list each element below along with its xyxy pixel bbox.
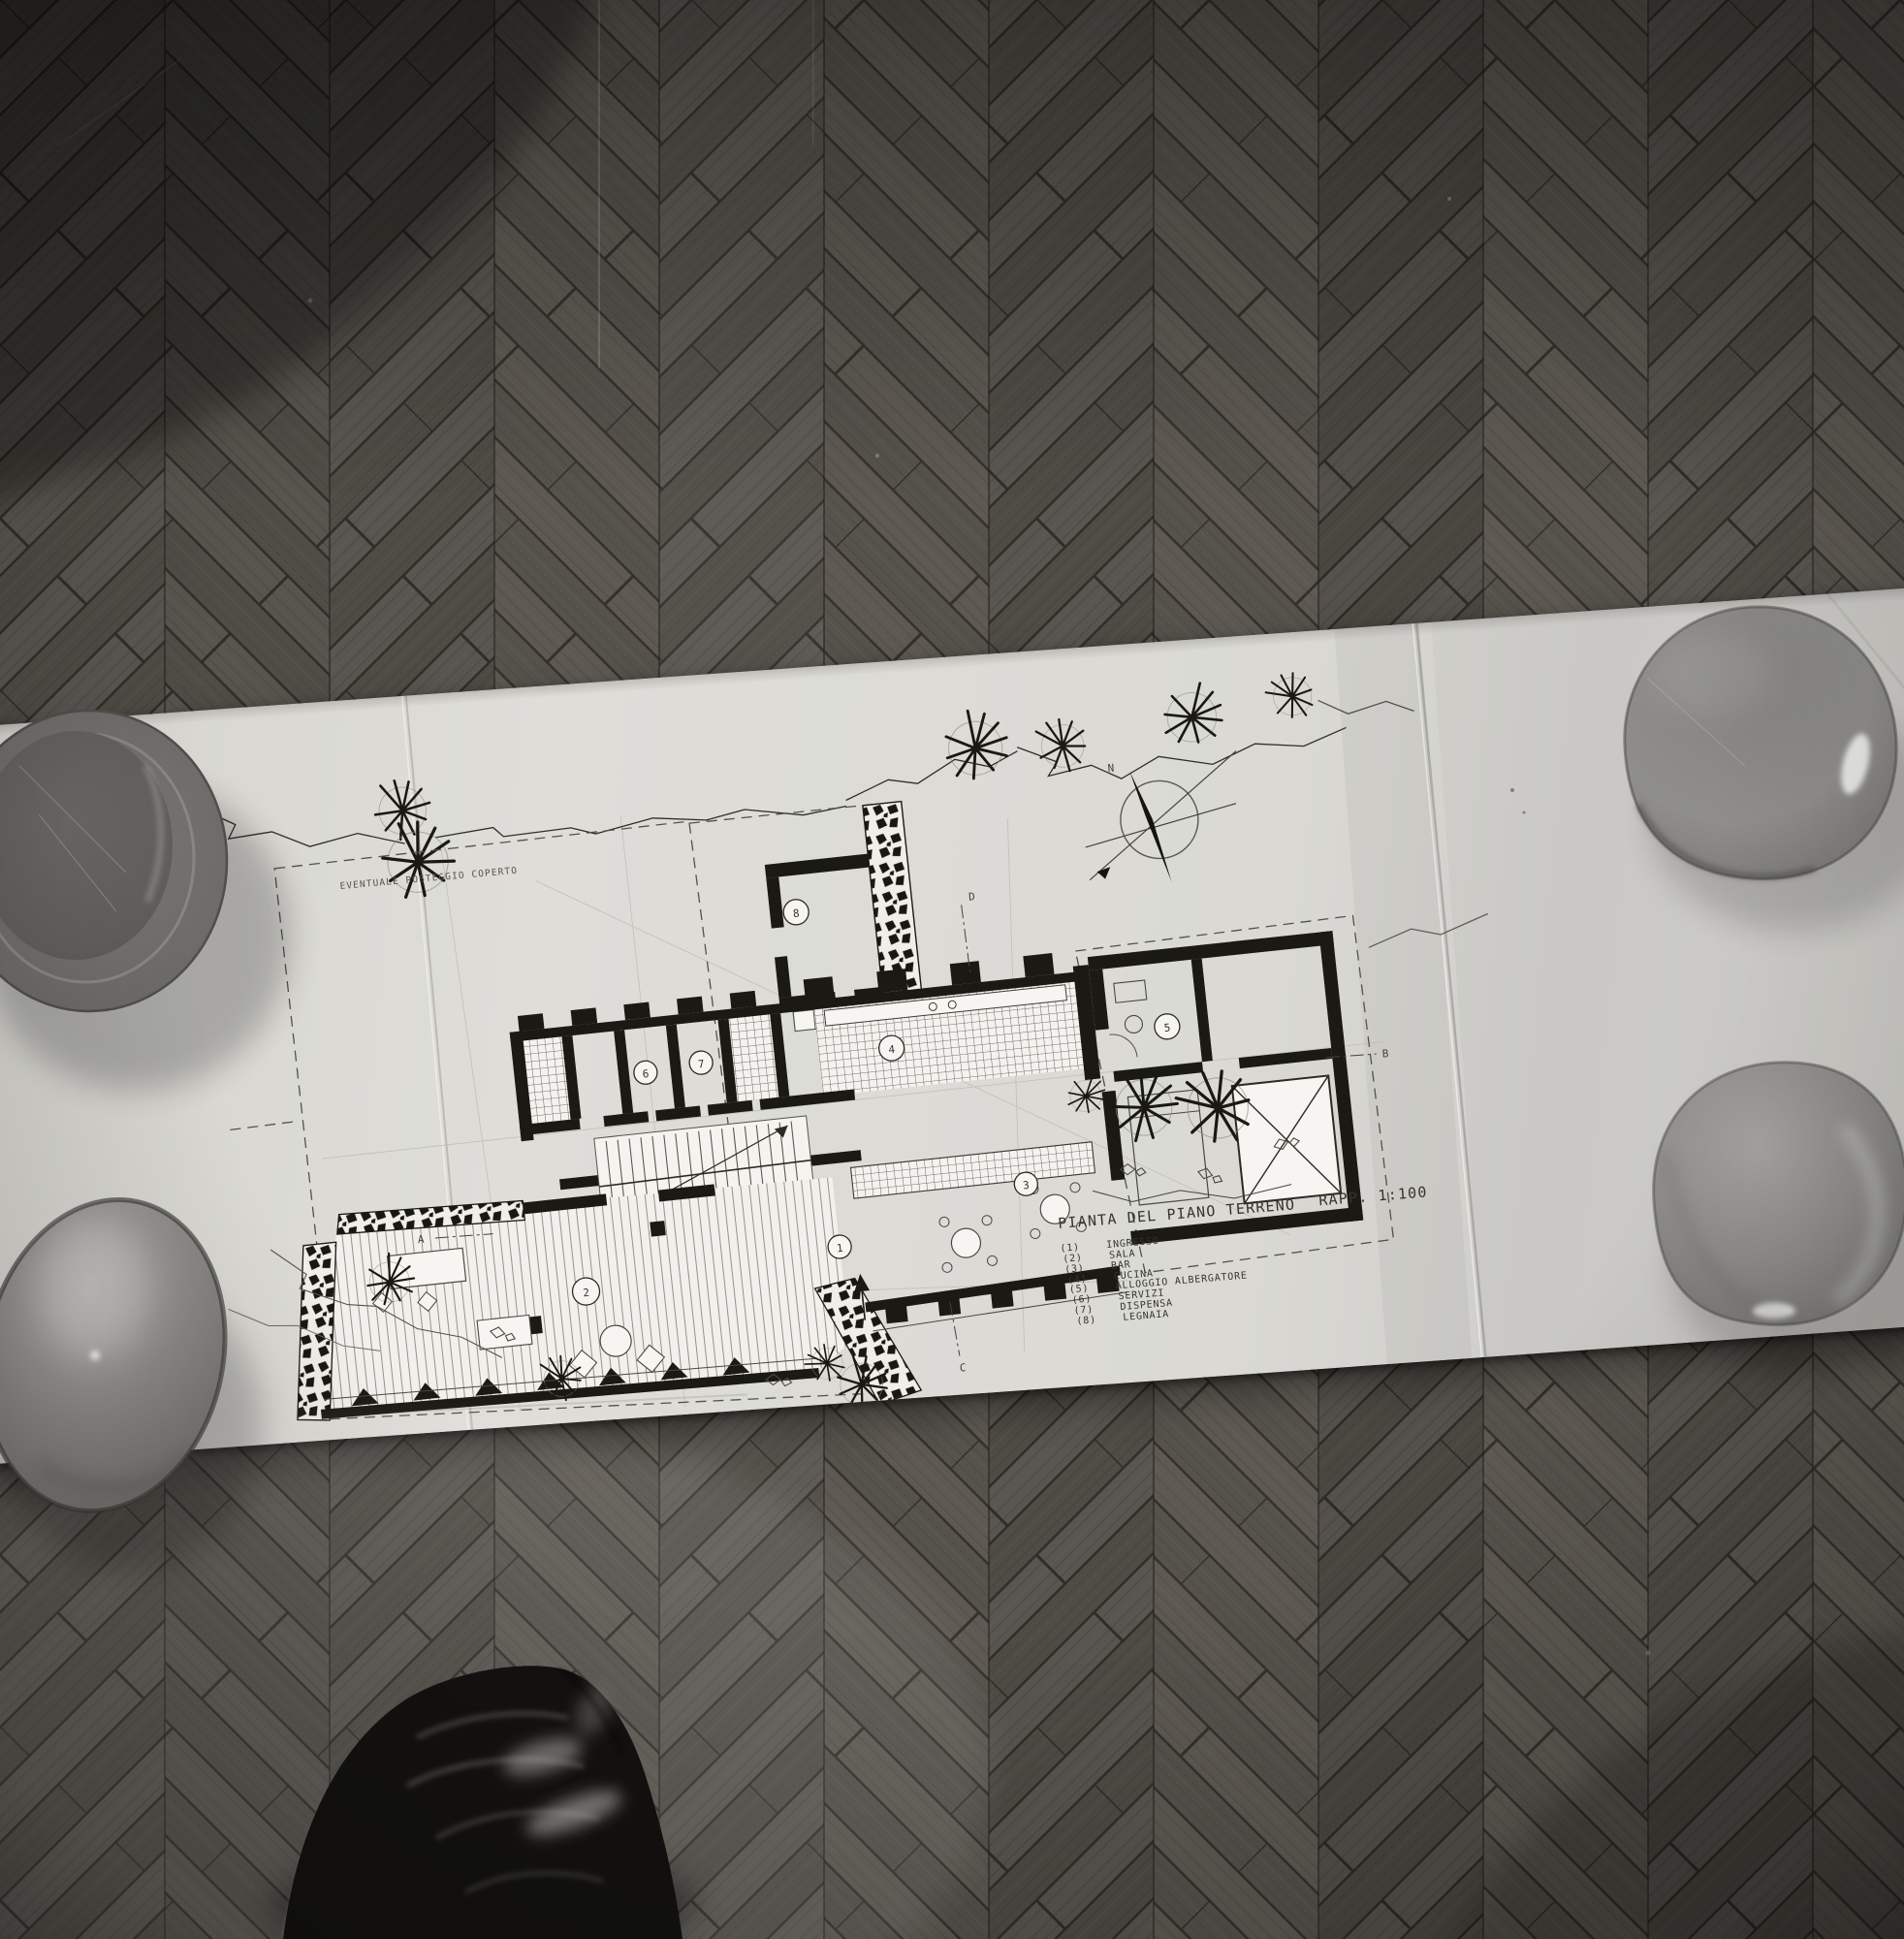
- section-marker-b: B: [1381, 1047, 1389, 1060]
- svg-text:7: 7: [697, 1058, 705, 1071]
- svg-text:8: 8: [792, 907, 800, 921]
- svg-text:1: 1: [836, 1242, 843, 1256]
- room-number-5: 5: [1154, 1013, 1182, 1041]
- svg-text:2: 2: [583, 1287, 590, 1300]
- tree-icon: [1151, 675, 1235, 758]
- rock-icon: [1196, 1167, 1223, 1185]
- room-number-8: 8: [782, 899, 810, 927]
- svg-text:5: 5: [1163, 1022, 1171, 1035]
- legend-num: (8): [1076, 1315, 1096, 1327]
- section-marker-a: A: [417, 1233, 425, 1246]
- room-number-6: 6: [633, 1060, 658, 1085]
- drawing-sheet: EVENTUALE POSTEGGIO COPERTO: [0, 582, 1904, 1464]
- floor-plan-drawing: EVENTUALE POSTEGGIO COPERTO: [0, 582, 1904, 1464]
- room-number-7: 7: [688, 1050, 714, 1075]
- tree-icon: [1259, 663, 1324, 728]
- section-marker-c: C: [959, 1361, 967, 1374]
- photo-plan-on-parquet: EVENTUALE POSTEGGIO COPERTO: [0, 0, 1904, 1939]
- north-label: N: [1107, 762, 1115, 775]
- svg-text:3: 3: [1022, 1179, 1030, 1192]
- section-marker-d: D: [968, 890, 976, 903]
- building-plan: 8 6 7 4 5: [239, 757, 1378, 1464]
- tree-icon: [933, 703, 1019, 791]
- svg-text:6: 6: [642, 1067, 650, 1081]
- tree-icon: [1029, 711, 1095, 779]
